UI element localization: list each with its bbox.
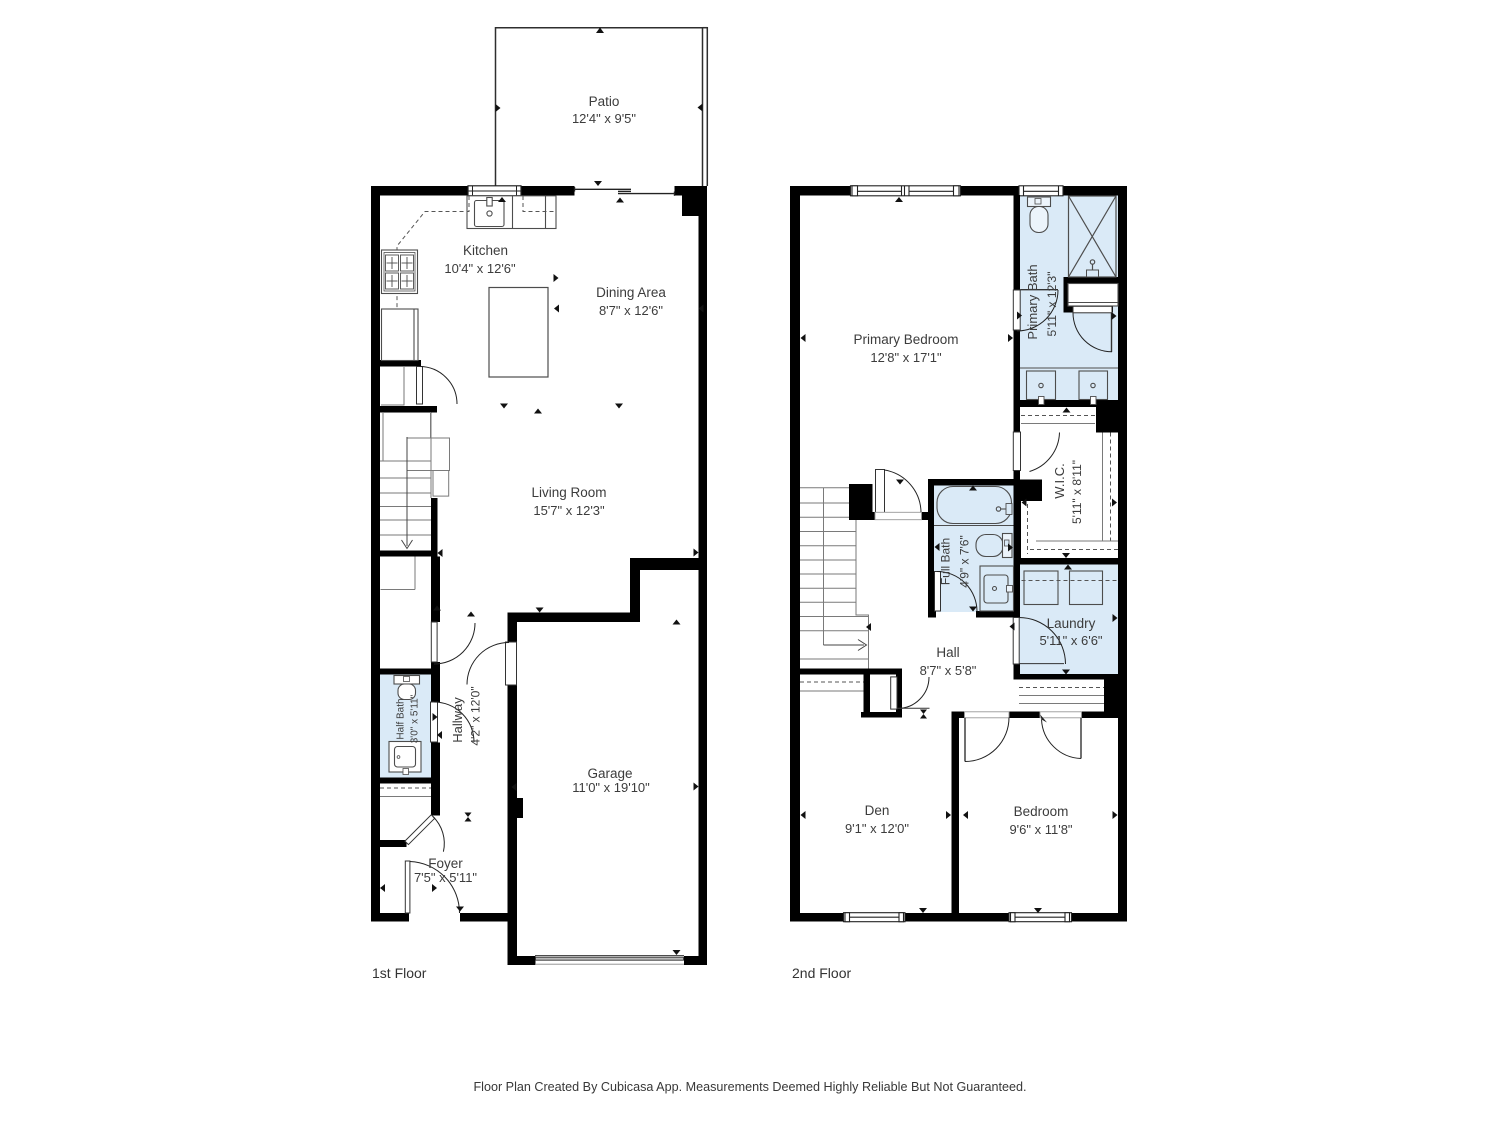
svg-text:15'7" x 12'3": 15'7" x 12'3" xyxy=(533,503,605,518)
svg-text:Foyer: Foyer xyxy=(428,856,463,871)
svg-text:Patio: Patio xyxy=(589,94,620,109)
svg-text:5'11" x 8'11": 5'11" x 8'11" xyxy=(1070,460,1084,524)
svg-text:4'2" x 12'0": 4'2" x 12'0" xyxy=(469,686,483,745)
svg-text:W.I.C.: W.I.C. xyxy=(1052,463,1067,498)
svg-text:5'11" x 6'6": 5'11" x 6'6" xyxy=(1039,633,1102,648)
svg-text:Primary Bath: Primary Bath xyxy=(1025,264,1040,339)
svg-text:12'8" x 17'1": 12'8" x 17'1" xyxy=(870,350,942,365)
svg-text:1st Floor: 1st Floor xyxy=(372,965,427,981)
svg-text:Floor Plan Created By Cubicasa: Floor Plan Created By Cubicasa App. Meas… xyxy=(473,1080,1026,1094)
svg-text:Dining Area: Dining Area xyxy=(596,285,666,300)
svg-text:Kitchen: Kitchen xyxy=(463,243,508,258)
svg-text:Garage: Garage xyxy=(587,766,632,781)
svg-text:2nd Floor: 2nd Floor xyxy=(792,965,851,981)
svg-text:8'7" x 5'8": 8'7" x 5'8" xyxy=(920,663,977,678)
svg-text:9'6" x 11'8": 9'6" x 11'8" xyxy=(1009,822,1072,837)
svg-text:Bedroom: Bedroom xyxy=(1014,804,1069,819)
svg-text:7'5" x 5'11": 7'5" x 5'11" xyxy=(414,870,477,885)
svg-text:Half Bath: Half Bath xyxy=(396,698,407,739)
svg-text:10'4" x 12'6": 10'4" x 12'6" xyxy=(444,261,516,276)
svg-text:Living Room: Living Room xyxy=(531,485,606,500)
svg-text:Den: Den xyxy=(865,803,890,818)
svg-text:Full Bath: Full Bath xyxy=(939,538,953,585)
svg-text:Laundry: Laundry xyxy=(1047,616,1096,631)
svg-text:9'1" x 12'0": 9'1" x 12'0" xyxy=(845,821,909,836)
svg-text:3'0" x 5'11": 3'0" x 5'11" xyxy=(410,694,421,743)
svg-text:8'7" x 12'6": 8'7" x 12'6" xyxy=(599,303,663,318)
svg-text:Primary Bedroom: Primary Bedroom xyxy=(853,332,958,347)
svg-text:5'11" x 12'3": 5'11" x 12'3" xyxy=(1045,272,1059,337)
svg-text:Hallway: Hallway xyxy=(450,697,465,743)
svg-text:4'9" x 7'6": 4'9" x 7'6" xyxy=(958,535,972,587)
svg-text:Hall: Hall xyxy=(936,645,959,660)
svg-text:12'4" x 9'5": 12'4" x 9'5" xyxy=(572,111,636,126)
svg-text:11'0" x 19'10": 11'0" x 19'10" xyxy=(572,780,650,795)
